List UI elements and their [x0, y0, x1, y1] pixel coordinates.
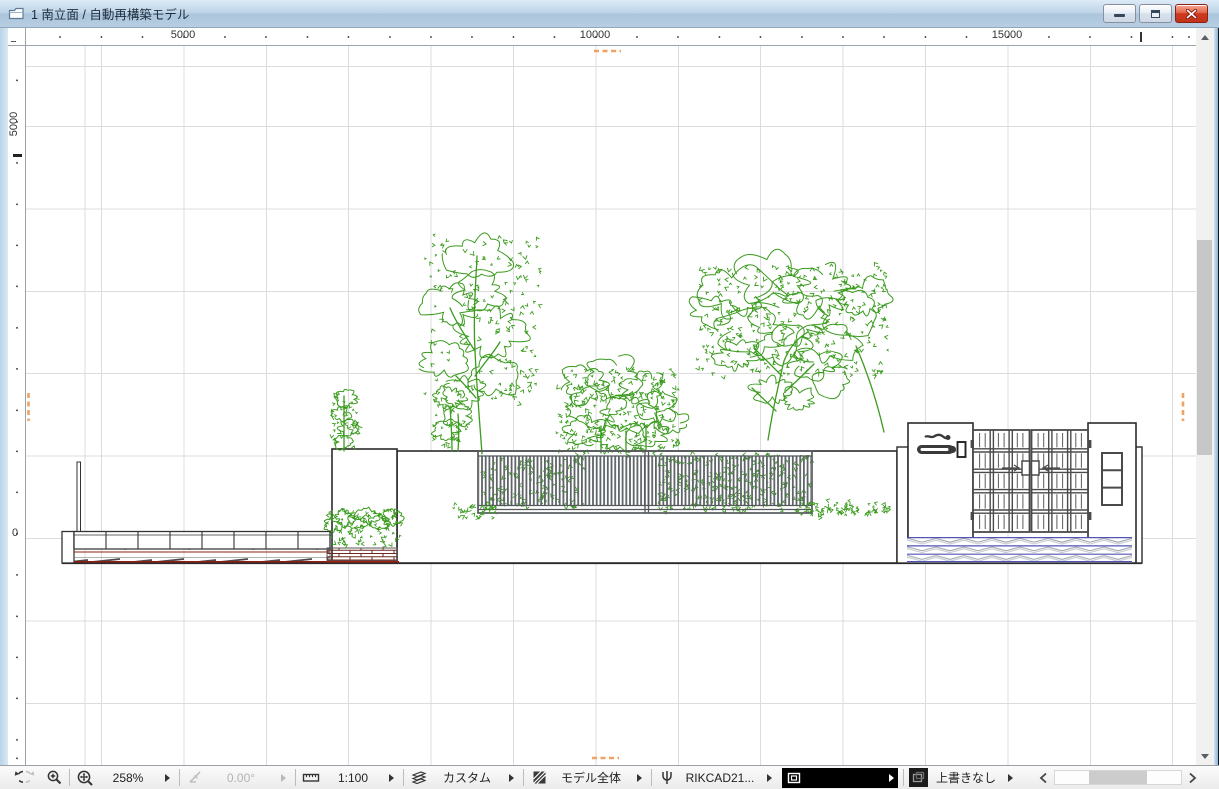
down-arrow-icon: [1201, 754, 1209, 759]
layers-icon: [410, 769, 428, 786]
rikcad-elevation-window: 1 南立面 / 自動再構築モデル 5000 10000 15000 5000 0: [0, 0, 1219, 789]
ruler-label: 0: [12, 527, 18, 539]
layer-combination-value[interactable]: カスタム: [429, 769, 505, 786]
ruler-label: 15000: [992, 29, 1023, 41]
elevation-drawing: [26, 46, 1196, 765]
undo-icon: [6, 769, 23, 786]
ruler-vertical: 5000 0: [8, 46, 26, 765]
ruler-corner: [8, 28, 26, 46]
close-button[interactable]: [1175, 4, 1208, 23]
fit-in-window-button[interactable]: [75, 769, 95, 787]
pen-set-icon: [659, 769, 675, 786]
paving: [907, 537, 1132, 563]
window-controls: [1100, 4, 1208, 23]
minimize-icon: [1114, 14, 1125, 17]
scroll-right-button[interactable]: [1188, 772, 1197, 784]
zoom-in-button[interactable]: [44, 769, 64, 787]
pillar-light-fixture: [1102, 453, 1122, 505]
rotation-value[interactable]: 0.00°: [205, 771, 277, 785]
horizontal-scroll-track[interactable]: [1054, 770, 1182, 785]
model-view-button[interactable]: [529, 769, 549, 787]
rotation-icon: [187, 769, 204, 786]
ruler-horizontal: 5000 10000 15000: [26, 28, 1196, 46]
ruler-label: 5000: [171, 29, 195, 41]
gate-leaf-right: [1032, 430, 1089, 532]
undo-view-button[interactable]: [4, 769, 24, 787]
close-icon: [1186, 9, 1197, 19]
meter-box: [958, 442, 966, 457]
nameplate-icon: [946, 435, 951, 440]
pen-set-menu-arrow-icon[interactable]: [767, 774, 772, 782]
overwrite-menu-arrow-icon[interactable]: [1008, 774, 1013, 782]
statusbar: 258% 0.00° 1:100 カスタム モデル全体 RIKCAD21...: [0, 765, 1219, 789]
titlebar[interactable]: 1 南立面 / 自動再構築モデル: [0, 0, 1219, 28]
pen-color-control[interactable]: [782, 768, 898, 788]
up-arrow-icon: [1201, 35, 1209, 40]
scale-button[interactable]: [301, 769, 321, 787]
redo-view-button[interactable]: [24, 769, 44, 787]
zoom-level-value[interactable]: 258%: [95, 771, 161, 785]
ruler-major-tick: [1140, 32, 1142, 42]
vertical-scroll-track[interactable]: [1196, 46, 1214, 747]
overwrite-mode-button[interactable]: [909, 768, 928, 787]
scale-value[interactable]: 1:100: [321, 771, 385, 785]
left-chevron-icon: [1039, 772, 1048, 784]
scale-menu-arrow-icon[interactable]: [389, 774, 394, 782]
right-chevron-icon: [1188, 772, 1197, 784]
fit-in-window-icon: [76, 769, 94, 787]
zoom-in-icon: [46, 769, 63, 786]
zoom-menu-arrow-icon[interactable]: [165, 774, 170, 782]
drawing-canvas[interactable]: [26, 46, 1196, 765]
gate-leaf-left: [973, 430, 1030, 532]
gate-handle: [1022, 461, 1030, 475]
ruler-label: 10000: [580, 29, 611, 41]
model-view-value[interactable]: モデル全体: [549, 769, 633, 786]
pen-set-button[interactable]: [657, 769, 677, 787]
layer-combination-button[interactable]: [409, 769, 429, 787]
pen-set-value[interactable]: RIKCAD21...: [677, 771, 763, 785]
pen-color-arrow-icon[interactable]: [889, 774, 894, 782]
window-frame-left: [0, 28, 8, 765]
nested-squares-icon: [786, 770, 802, 786]
ruler-label: 5000: [8, 109, 20, 139]
overwrite-icon: [911, 770, 926, 785]
slatted-fence: [478, 451, 812, 513]
layer-menu-arrow-icon[interactable]: [509, 774, 514, 782]
redo-icon: [26, 769, 43, 786]
hatch-icon: [531, 769, 548, 786]
restore-button[interactable]: [1139, 4, 1172, 23]
rotation-menu-arrow-icon[interactable]: [281, 774, 286, 782]
scroll-up-button[interactable]: [1196, 28, 1214, 46]
scroll-down-button[interactable]: [1196, 747, 1214, 765]
overwrite-mode-value[interactable]: 上書きなし: [928, 769, 1004, 786]
window-title: 1 南立面 / 自動再構築モデル: [31, 4, 189, 23]
horizontal-scrollbar[interactable]: [1039, 770, 1197, 785]
horizontal-scroll-thumb[interactable]: [1089, 771, 1147, 784]
vertical-scroll-thumb[interactable]: [1197, 240, 1212, 455]
view-markers: [29, 51, 1184, 758]
restore-icon: [1151, 10, 1160, 18]
window-icon: [8, 6, 25, 21]
rotation-button[interactable]: [185, 769, 205, 787]
gate-handle: [1032, 461, 1040, 475]
window-frame-right: [1214, 28, 1219, 765]
view-menu-arrow-icon[interactable]: [637, 774, 642, 782]
ruler-icon: [302, 769, 320, 786]
scroll-left-button[interactable]: [1039, 772, 1048, 784]
ruler-extent-tick: [13, 154, 22, 157]
vertical-scrollbar[interactable]: [1196, 28, 1214, 765]
minimize-button[interactable]: [1103, 4, 1136, 23]
